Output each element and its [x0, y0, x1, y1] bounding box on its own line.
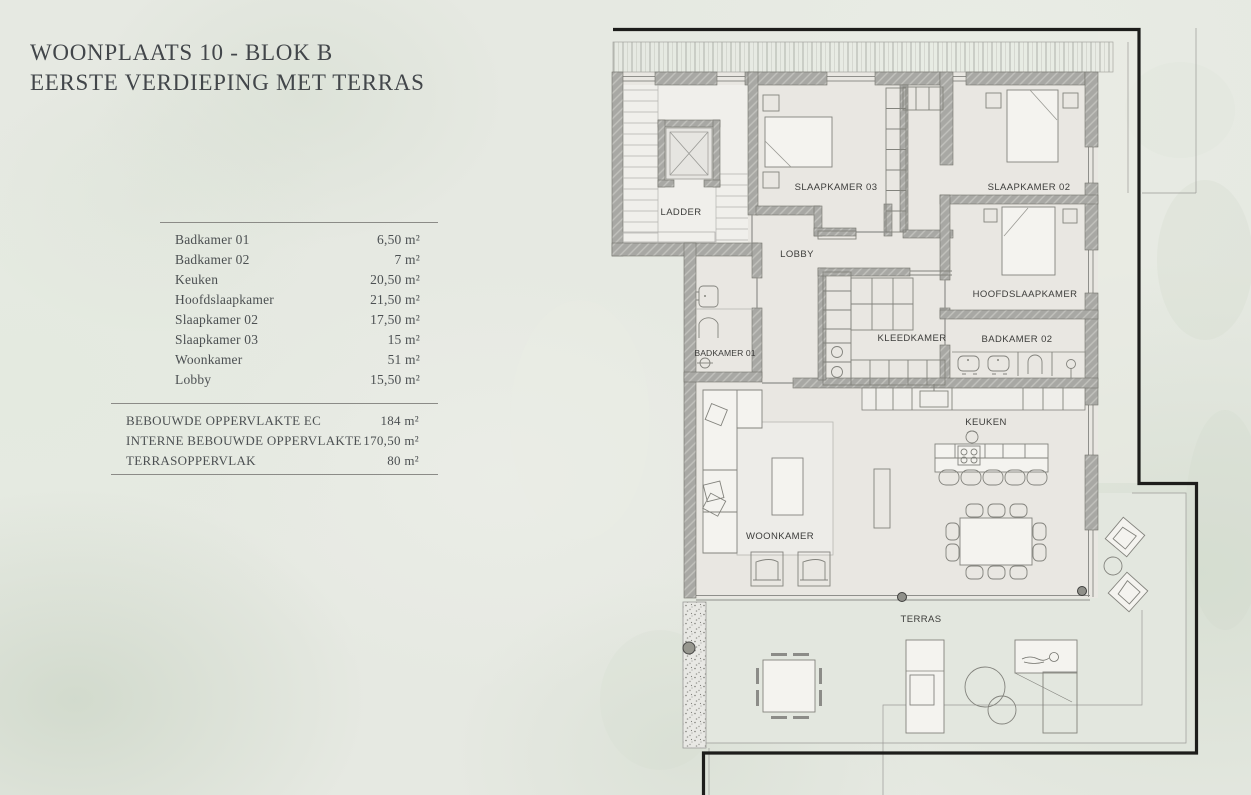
room-label-kleedkamer: KLEEDKAMER — [878, 333, 947, 344]
terrace-dining-set — [756, 653, 822, 719]
room-label-badkamer-01: BADKAMER 01 — [694, 348, 755, 358]
canopy-louver-band — [613, 42, 1113, 72]
bed — [765, 117, 832, 167]
room-label-terras: TERRAS — [901, 614, 942, 625]
bed — [1007, 90, 1058, 162]
planter-column — [683, 642, 695, 654]
outdoor-table — [763, 660, 815, 712]
room-label-slaapkamer-02: SLAAPKAMER 02 — [988, 182, 1071, 193]
kitchen-counter — [862, 388, 1085, 410]
east-walkway-floor — [1098, 30, 1139, 483]
bed — [1002, 207, 1055, 275]
planter — [683, 602, 706, 748]
room-label-hoofdslaapkamer: HOOFDSLAAPKAMER — [973, 289, 1078, 300]
room-label-badkamer-02: BADKAMER 02 — [982, 334, 1053, 345]
floor-plan-drawing: LADDER SLAAPKAMER 03 SLAAPKAMER 02 LOBBY… — [0, 0, 1251, 795]
plan-sheet: WOONPLAATS 10 - BLOK B EERSTE VERDIEPING… — [0, 0, 1251, 795]
room-label-lobby: LOBBY — [780, 249, 814, 260]
room-label-ladder: LADDER — [661, 207, 702, 218]
room-label-keuken: KEUKEN — [965, 417, 1006, 428]
dining-table — [960, 518, 1032, 565]
room-label-woonkamer: WOONKAMER — [746, 531, 814, 542]
room-label-slaapkamer-03: SLAAPKAMER 03 — [795, 182, 878, 193]
elevator — [658, 120, 720, 187]
coffee-table — [772, 458, 803, 515]
sunbed — [906, 640, 944, 733]
